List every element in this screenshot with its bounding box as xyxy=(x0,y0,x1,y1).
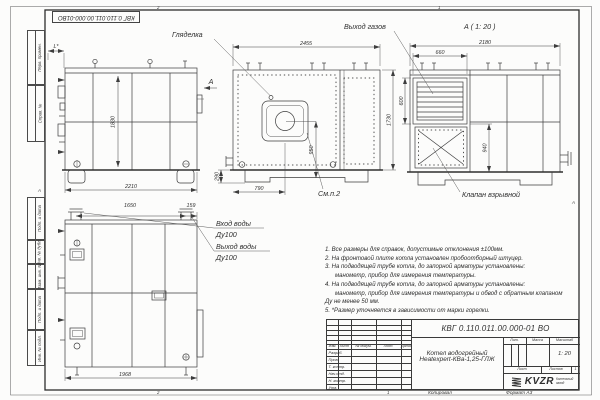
sheets-label: Листов xyxy=(541,366,571,373)
col-podp: Подп. xyxy=(376,344,401,349)
see-note-callout: См.п.2 xyxy=(318,189,340,198)
water-outlet-callout: Выход воды xyxy=(216,242,257,251)
note-line: манометр, прибор для измерения температу… xyxy=(325,272,583,281)
company-logo: KVZR Котельный завод xyxy=(503,373,580,391)
note-line: манометр, прибор для измерения температу… xyxy=(325,290,583,299)
margin-label: Инв. № подл. xyxy=(37,335,42,362)
margin-label: Подп. и дата xyxy=(37,296,42,323)
gas-outlet-callout: Выход газов xyxy=(344,22,386,31)
doc-number-stamp: КВГ 0.110.011.00.000-01ВО xyxy=(52,11,140,23)
margin-box-perv-primen: Перв. примен. xyxy=(27,30,45,85)
note-line: 1. Все размеры для справок, допустимые о… xyxy=(325,246,583,255)
dim-1650: 1650 xyxy=(124,203,136,209)
note-line: Ду не менее 50 мм. xyxy=(325,298,583,307)
water-inlet-callout: Вход воды xyxy=(216,219,252,228)
row-razrab: Разраб. xyxy=(327,349,353,356)
dim-2180: 2180 xyxy=(478,40,491,46)
view-back xyxy=(58,209,203,375)
water-inlet-dn: Ду100 xyxy=(215,230,237,239)
lit-label: Лит. xyxy=(503,337,526,344)
water-outlet-dn: Ду100 xyxy=(215,253,237,262)
margin-box-podp-data-2: Подп. и дата xyxy=(27,289,45,330)
row-prov: Пров. xyxy=(327,356,353,363)
dim-159: 159 xyxy=(187,203,196,209)
sight-glass-callout: Гляделка xyxy=(172,30,203,39)
zone-mark-bottom-1: 1 xyxy=(387,390,389,395)
dim-290: 290 xyxy=(215,172,221,182)
view-back-dimensions: 1650 159 1968 Вход воды Ду100 Выход воды… xyxy=(65,203,270,381)
dim-2455: 2455 xyxy=(299,41,313,47)
note-line: 3. На подводящей трубе котла, до запорно… xyxy=(325,263,583,272)
scale-label: Масштаб xyxy=(549,337,580,344)
margin-label: Подп. и дата xyxy=(37,205,42,232)
zone-mark-top-2: 2 xyxy=(157,5,159,10)
view-front xyxy=(226,63,383,182)
note-line: 4. На подводящей трубе котла, до запорно… xyxy=(325,281,583,290)
sheets-value: 1 xyxy=(571,366,580,373)
logo-text: KVZR xyxy=(525,377,554,387)
row-nkontr: Н. контр. xyxy=(327,377,353,384)
zone-mark-top-1: 1 xyxy=(438,5,440,10)
mass-label: Масса xyxy=(526,337,549,344)
zone-mark-left-a: А xyxy=(38,188,41,193)
view-left-side xyxy=(58,59,217,183)
dim-l-star: L* xyxy=(53,44,59,50)
margin-box-inv-dubl: Инв. № дубл. xyxy=(27,240,45,264)
view-arrow-label: А xyxy=(208,77,214,86)
product-name-line2: Heatexpert-КВа-1,25-ГЛЖ xyxy=(419,357,494,363)
logo-caption-line2: завод xyxy=(556,382,573,386)
margin-box-podp-data-1: Подп. и дата xyxy=(27,197,45,240)
spring-icon xyxy=(510,376,523,389)
doc-number: КВГ 0.110.011.00.000-01 ВО xyxy=(411,320,580,337)
margin-box-vzam-inv: Взам. инв. № xyxy=(27,264,45,289)
note-line: 5. *Размер уточняется в зависимости от м… xyxy=(325,307,583,316)
dim-1730: 1730 xyxy=(387,114,393,126)
col-data: Дата xyxy=(401,344,411,349)
row-nachotd: Нач.отд. xyxy=(327,370,353,377)
sheet-label: Лист xyxy=(503,366,541,373)
view-a-title: А ( 1: 20 ) xyxy=(463,22,496,31)
margin-label: Справ. № xyxy=(37,104,42,124)
doc-number-stamp-text: КВГ 0.110.011.00.000-01ВО xyxy=(58,14,135,21)
copied-label: Копировал xyxy=(428,391,452,396)
margin-label: Взам. инв. № xyxy=(37,263,42,290)
dim-790: 790 xyxy=(255,186,264,192)
view-front-dimensions: 2455 1730 950 290 790 Гляделка См.п.2 xyxy=(172,30,396,198)
row-utv: Утв. xyxy=(327,384,353,391)
dim-1830: 1830 xyxy=(111,116,117,128)
note-line: 2. На фронтовой плите котла установлен п… xyxy=(325,255,583,264)
title-block: Изм. Лист № докум. Подп. Дата Разраб. Пр… xyxy=(326,319,579,390)
dim-940: 940 xyxy=(483,144,489,153)
col-doc: № докум. xyxy=(351,344,376,349)
dim-600: 600 xyxy=(399,97,405,106)
margin-box-sprav: Справ. № xyxy=(27,85,45,142)
dim-1968: 1968 xyxy=(119,372,131,378)
explosion-valve-callout: Клапан взрывной xyxy=(462,190,520,199)
scale-value: 1: 20 xyxy=(549,344,580,366)
margin-label: Перв. примен. xyxy=(37,43,42,72)
row-tkontr: Т. контр. xyxy=(327,363,353,370)
dim-2210: 2210 xyxy=(124,184,137,190)
margin-box-inv-podl: Инв. № подл. xyxy=(27,330,45,366)
zone-mark-bottom-2: 2 xyxy=(157,390,159,395)
product-name: Котел водогрейный Heatexpert-КВа-1,25-ГЛ… xyxy=(411,337,503,377)
zone-mark-right-a: А xyxy=(572,200,575,205)
logo-caption: Котельный завод xyxy=(556,378,573,385)
dim-660: 660 xyxy=(436,50,445,56)
margin-label: Инв. № дубл. xyxy=(37,239,42,265)
format-label: Формат А3 xyxy=(506,391,532,396)
technical-notes: 1. Все размеры для справок, допустимые о… xyxy=(325,246,583,316)
drawing-sheet: .ln{stroke:#3d3d3d;stroke-width:.7;fill:… xyxy=(0,0,600,400)
